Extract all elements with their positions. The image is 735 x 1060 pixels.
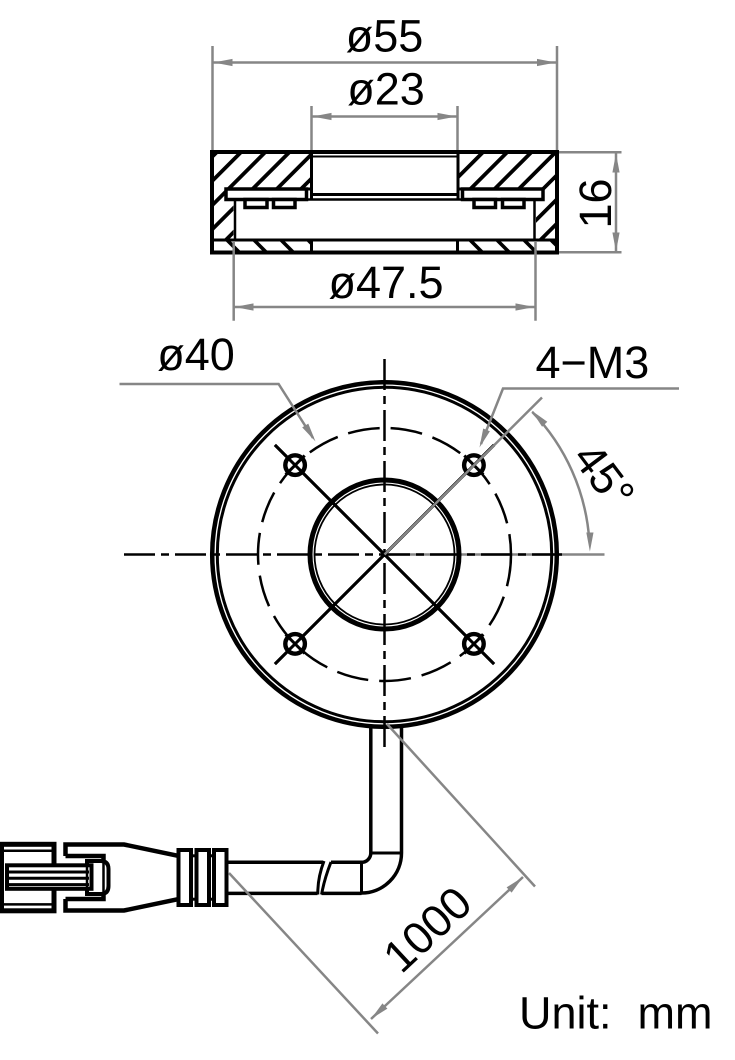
- svg-text:ø23: ø23: [347, 64, 425, 115]
- svg-text:4−M3: 4−M3: [536, 337, 650, 388]
- svg-text:ø40: ø40: [157, 329, 235, 380]
- svg-text:ø47.5: ø47.5: [328, 257, 443, 308]
- svg-text:16: 16: [570, 178, 621, 228]
- svg-text:Unit:: Unit:: [519, 988, 612, 1039]
- svg-text:ø55: ø55: [346, 11, 424, 62]
- svg-text:mm: mm: [638, 988, 713, 1039]
